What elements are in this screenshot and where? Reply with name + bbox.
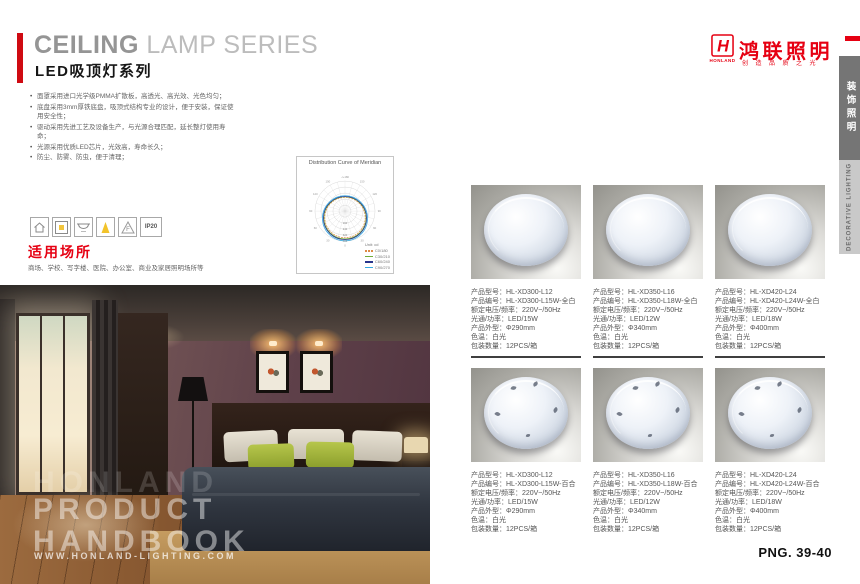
spec-line: 色温：白光: [471, 333, 585, 342]
spec-line: 产品编号：HL-XD300-L15W-百合: [471, 480, 585, 489]
pillow-white: [351, 430, 402, 462]
spec-line: 产品编号：HL-XD350-L18W-百合: [593, 480, 707, 489]
usage-title: 适用场所: [28, 242, 92, 262]
spec-line: 额定电压/频率：220V~/50Hz: [715, 306, 829, 315]
light-beam-icon: [96, 217, 115, 237]
svg-text:400: 400: [343, 239, 348, 243]
feature-item: 面罩采用进口光学级PMMA扩散板，高透光、高光效、光色均匀；: [30, 92, 234, 102]
product-photo: [471, 185, 581, 279]
svg-text:-/+180: -/+180: [341, 175, 349, 179]
spec-line: 产品外型：Φ290mm: [471, 507, 585, 516]
legend-label: C90/270: [375, 265, 390, 271]
product-photo: [593, 185, 703, 279]
svg-text:120: 120: [313, 192, 318, 196]
product-grid: 产品型号：HL-XD300-L12产品编号：HL-XD300-L15W-全白额定…: [471, 185, 837, 534]
product-photo: [715, 185, 825, 279]
spec-line: 光通/功率：LED/15W: [471, 315, 585, 324]
spec-line: 光通/功率：LED/18W: [715, 498, 829, 507]
certification-icons: F IP20: [30, 217, 162, 237]
spec-line: 产品外型：Φ340mm: [593, 507, 707, 516]
curve-title: Distribution Curve of Meridian: [297, 160, 393, 166]
svg-text:90: 90: [378, 209, 382, 213]
product-specs: 产品型号：HL-XD420-L24产品编号：HL-XD420-L24W-全白额定…: [715, 288, 829, 351]
product-specs: 产品型号：HL-XD350-L16产品编号：HL-XD350-L18W-全白额定…: [593, 288, 707, 351]
accent-bar: [17, 33, 23, 83]
spec-line: 包装数量：12PCS/箱: [471, 342, 585, 351]
side-tab-category-en: DECORATIVE LIGHTING: [839, 160, 860, 254]
spec-line: 色温：白光: [593, 516, 707, 525]
bird-artwork: [266, 367, 280, 377]
ip-rating-badge: IP20: [140, 217, 162, 237]
series-title-cn: LED吸顶灯系列: [35, 60, 152, 81]
spec-line: 包装数量：12PCS/箱: [715, 525, 829, 534]
svg-text:0: 0: [344, 243, 346, 247]
product-specs: 产品型号：HL-XD350-L16产品编号：HL-XD350-L18W-百合额定…: [593, 471, 707, 534]
spec-line: 包装数量：12PCS/箱: [593, 525, 707, 534]
svg-text:240: 240: [343, 227, 348, 231]
legend-entry: C90/270: [365, 265, 390, 271]
product-card: 产品型号：HL-XD350-L16产品编号：HL-XD350-L18W-百合额定…: [593, 368, 707, 534]
picture-frame: [256, 351, 289, 393]
legend-swatch: [365, 256, 373, 258]
ceiling-lamp-image: [606, 194, 690, 266]
distribution-curve-box: Distribution Curve of Meridian -/+180015…: [296, 156, 394, 274]
bird-artwork: [310, 367, 324, 377]
svg-text:320: 320: [343, 233, 348, 237]
spec-line: 额定电压/频率：220V~/50Hz: [593, 489, 707, 498]
spec-line: 额定电压/频率：220V~/50Hz: [715, 489, 829, 498]
product-specs: 产品型号：HL-XD420-L24产品编号：HL-XD420-L24W-百合额定…: [715, 471, 829, 534]
spec-divider: [471, 356, 581, 358]
spec-line: 包装数量：12PCS/箱: [471, 525, 585, 534]
spec-line: 产品编号：HL-XD420-L24W-全白: [715, 297, 829, 306]
legend-swatch: [365, 250, 373, 252]
overlay-product: PRODUCT: [33, 493, 216, 527]
product-card: 产品型号：HL-XD420-L24产品编号：HL-XD420-L24W-百合额定…: [715, 368, 829, 534]
feature-item: 光源采用优质LED芯片，光效高，寿命长久；: [30, 143, 234, 153]
spec-line: 产品外型：Φ290mm: [471, 324, 585, 333]
spec-line: 产品型号：HL-XD420-L24: [715, 471, 829, 480]
product-photo: [471, 368, 581, 462]
feature-list: 面罩采用进口光学级PMMA扩散板，高透光、高光效、光色均匀； 底盘采用3mm厚铁…: [30, 92, 234, 164]
ceiling-lamp-image: [728, 194, 812, 266]
spec-line: 额定电压/频率：220V~/50Hz: [471, 306, 585, 315]
ceiling-mount-icon: [74, 217, 93, 237]
product-photo: [593, 368, 703, 462]
spec-line: 色温：白光: [471, 516, 585, 525]
svg-text:150: 150: [360, 179, 365, 183]
floor-lamp-shade: [178, 377, 208, 401]
spec-line: 包装数量：12PCS/箱: [715, 342, 829, 351]
spec-divider: [715, 356, 825, 358]
spec-line: 光通/功率：LED/15W: [471, 498, 585, 507]
spec-line: 产品型号：HL-XD300-L12: [471, 288, 585, 297]
page-number: PNG. 39-40: [730, 545, 832, 560]
spec-line: 光通/功率：LED/12W: [593, 315, 707, 324]
spec-line: 额定电压/频率：220V~/50Hz: [471, 489, 585, 498]
curve-unit-label: Unit: cd: [365, 242, 390, 248]
table-lamp: [404, 437, 428, 453]
spec-line: 光通/功率：LED/12W: [593, 498, 707, 507]
svg-text:H: H: [717, 37, 730, 55]
spec-line: 色温：白光: [593, 333, 707, 342]
series-title-en: CEILING LAMP SERIES: [34, 31, 318, 60]
svg-text:60: 60: [373, 226, 377, 230]
spec-line: 额定电压/频率：220V~/50Hz: [593, 306, 707, 315]
legend-swatch: [365, 267, 373, 269]
spec-line: 色温：白光: [715, 333, 829, 342]
bedroom-photo: HONLAND PRODUCT HANDBOOK WWW.HONLAND-LIG…: [0, 285, 430, 584]
spec-line: 包装数量：12PCS/箱: [593, 342, 707, 351]
product-card: 产品型号：HL-XD420-L24产品编号：HL-XD420-L24W-全白额定…: [715, 185, 829, 368]
overlay-website: WWW.HONLAND-LIGHTING.COM: [34, 551, 236, 561]
spec-line: 产品编号：HL-XD300-L15W-全白: [471, 297, 585, 306]
spec-line: 产品编号：HL-XD350-L18W-全白: [593, 297, 707, 306]
usage-text: 商场、学校、写字楼、医院、办公室、商业及家居照明场所等: [28, 262, 204, 272]
spec-line: 产品型号：HL-XD350-L16: [593, 288, 707, 297]
product-card: 产品型号：HL-XD300-L12产品编号：HL-XD300-L15W-全白额定…: [471, 185, 585, 368]
product-specs: 产品型号：HL-XD300-L12产品编号：HL-XD300-L15W-百合额定…: [471, 471, 585, 534]
product-photo: [715, 368, 825, 462]
curtain-left: [0, 299, 15, 504]
f-mark-icon: F: [118, 217, 137, 237]
spec-line: 产品型号：HL-XD350-L16: [593, 471, 707, 480]
spec-line: 产品外型：Φ340mm: [593, 324, 707, 333]
series-title-strong: CEILING: [34, 31, 139, 59]
svg-text:90: 90: [309, 209, 313, 213]
svg-text:30: 30: [361, 239, 365, 243]
spec-line: 产品外型：Φ400mm: [715, 324, 829, 333]
svg-text:60: 60: [314, 226, 318, 230]
svg-text:F: F: [126, 227, 130, 233]
indoor-use-icon: [30, 217, 49, 237]
corner-accent: [845, 36, 860, 41]
feature-item: 底盘采用3mm厚铁底盘，吸顶式结构专业的设计，便于安装，保证使用安全性；: [30, 103, 234, 122]
spec-line: 色温：白光: [715, 516, 829, 525]
product-specs: 产品型号：HL-XD300-L12产品编号：HL-XD300-L15W-全白额定…: [471, 288, 585, 351]
feature-item: 防尘、防雾、防虫，便于清理；: [30, 153, 234, 163]
legend-swatch: [365, 261, 373, 263]
product-card: 产品型号：HL-XD300-L12产品编号：HL-XD300-L15W-百合额定…: [471, 368, 585, 534]
spec-line: 产品外型：Φ400mm: [715, 507, 829, 516]
ceiling-lamp-image: [484, 194, 568, 266]
svg-text:150: 150: [326, 179, 331, 183]
series-title-light: LAMP SERIES: [139, 31, 318, 59]
spec-line: 产品型号：HL-XD420-L24: [715, 288, 829, 297]
light-source-icon: [52, 217, 71, 237]
svg-text:30: 30: [326, 239, 330, 243]
curve-legend: Unit: cd C0/180C30/210C60/240C90/270: [365, 242, 390, 271]
spec-line: 光通/功率：LED/18W: [715, 315, 829, 324]
spec-divider: [593, 356, 703, 358]
svg-text:120: 120: [372, 192, 377, 196]
catalog-spread: CEILING LAMP SERIES LED吸顶灯系列 面罩采用进口光学级PM…: [0, 0, 860, 584]
picture-frame: [300, 351, 333, 393]
pillow-green: [306, 442, 354, 469]
spec-line: 产品编号：HL-XD420-L24W-百合: [715, 480, 829, 489]
side-tab-category-cn: 装饰照明: [839, 56, 860, 160]
product-card: 产品型号：HL-XD350-L16产品编号：HL-XD350-L18W-全白额定…: [593, 185, 707, 368]
logo-wordmark: HONLAND: [706, 58, 739, 63]
brand-slogan: 创造品质之光: [742, 58, 823, 67]
honland-logo-icon: H: [711, 34, 734, 57]
svg-text:160: 160: [343, 221, 348, 225]
spec-line: 产品型号：HL-XD300-L12: [471, 471, 585, 480]
feature-item: 驱动采用先进工艺及设备生产，与光源合理匹配，延长整灯使用寿命；: [30, 123, 234, 142]
